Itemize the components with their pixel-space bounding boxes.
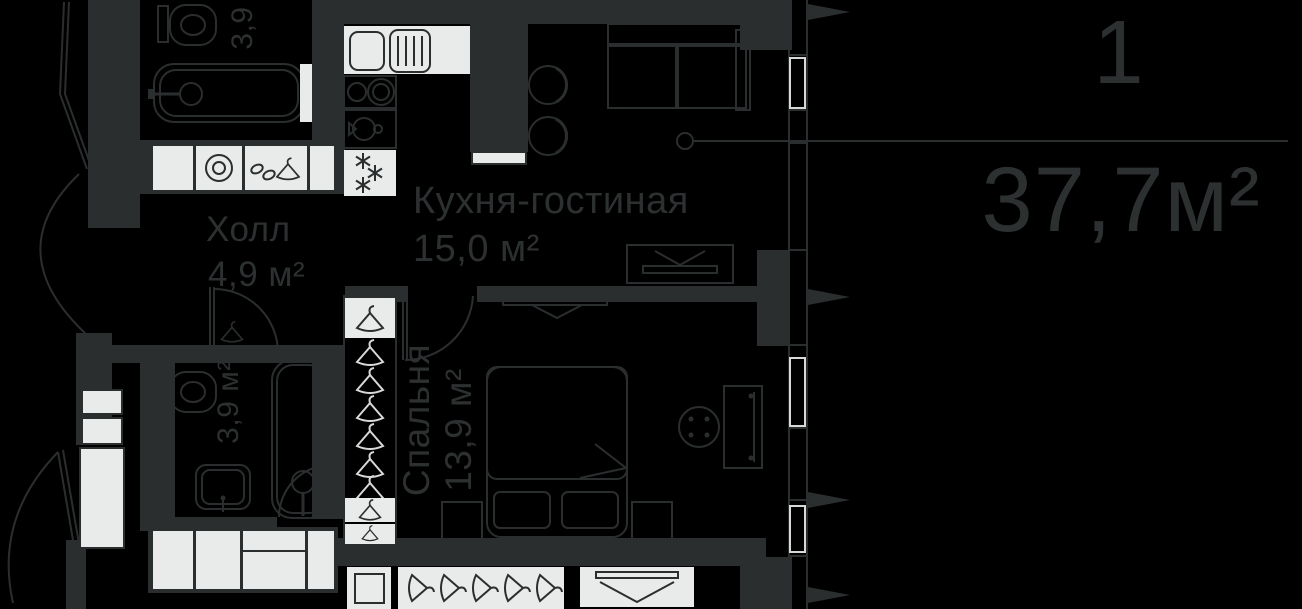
hanger-icon <box>222 322 243 342</box>
unit-total-area: 37,7м² <box>982 148 1261 253</box>
sofa-icon <box>608 24 750 110</box>
walls <box>66 0 792 609</box>
facade-fin-icon <box>808 4 850 603</box>
wall-connector <box>108 345 142 363</box>
pillow <box>562 492 618 528</box>
hall-area: 4,9 м² <box>208 255 305 295</box>
toilet-icon <box>158 5 216 45</box>
sink-icon <box>196 465 250 512</box>
bathroom-bottom-area: 3,9 м² <box>212 360 246 444</box>
bathroom-top-area: 3,9 <box>226 6 260 49</box>
kettle-icon <box>344 110 396 148</box>
nightstand <box>632 502 672 540</box>
right-facade-glazing <box>789 0 807 609</box>
facade-mid-pier <box>757 250 790 346</box>
hall-label: Холл <box>206 210 291 250</box>
pouf-icon <box>679 407 719 447</box>
bedroom-area: 13,9 м² <box>438 368 480 492</box>
kitchen-living-area: 15,0 м² <box>413 228 540 271</box>
partition-right <box>477 286 760 302</box>
corridor-wardrobe-icon <box>398 567 564 609</box>
window-frame-ticks <box>789 55 807 556</box>
pillow <box>494 492 550 528</box>
bath-top-right-wall <box>312 0 344 158</box>
chair-icon <box>529 66 567 155</box>
bedroom-label: Спальня <box>396 344 438 496</box>
top-wall <box>335 0 760 24</box>
dressing-table-icon <box>724 386 762 468</box>
window-sash-icon <box>790 58 805 552</box>
floorplan-canvas: Кухня-гостиная 15,0 м² Холл 4,9 м² Спаль… <box>0 0 1302 609</box>
bath-bottom-left-wall <box>140 345 175 531</box>
tv-icon <box>627 245 733 283</box>
door-arc-icon <box>214 289 278 353</box>
entrance-door-arc-icon <box>9 452 58 603</box>
area-leader-line <box>677 133 1288 149</box>
dining-island-icon <box>470 24 528 164</box>
kitchen-fixtures <box>344 26 470 196</box>
kitchen-living-label: Кухня-гостиная <box>413 180 689 223</box>
hall-cabinets <box>80 390 124 548</box>
mirror-icon <box>580 567 694 607</box>
corridor-strip <box>347 567 694 609</box>
balcony-door-arc-icon <box>40 174 87 335</box>
hall-door <box>210 287 278 353</box>
facade-bottom-pier <box>740 557 792 609</box>
bathtub-icon <box>148 64 304 122</box>
nightstand <box>442 502 482 540</box>
bath-bottom-right-wall <box>312 363 344 519</box>
unit-rooms-count: 1 <box>1093 2 1144 105</box>
wardrobe-icon <box>344 296 396 546</box>
entrance-wall-stub <box>66 540 86 609</box>
bath-shelf <box>300 64 312 122</box>
left-top-wall <box>88 0 140 228</box>
washer-icon <box>347 567 391 609</box>
